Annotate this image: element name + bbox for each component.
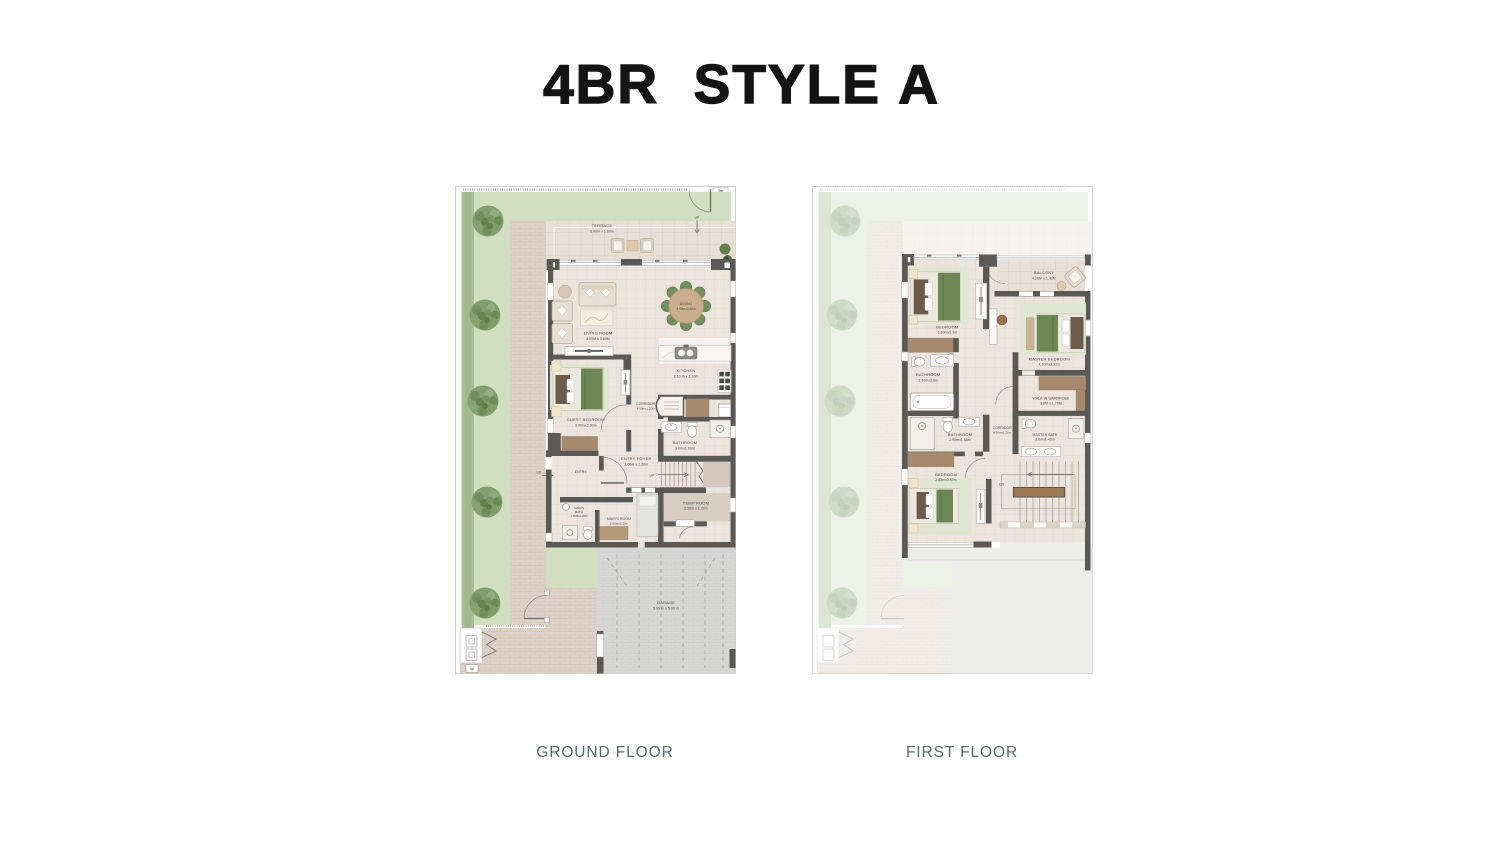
svg-text:2.38m x 1.20m: 2.38m x 1.20m — [684, 507, 708, 511]
svg-text:2.66m x 2.20m: 2.66m x 2.20m — [624, 462, 648, 466]
svg-text:BATHROOM: BATHROOM — [673, 440, 697, 445]
svg-text:W: W — [470, 668, 474, 672]
svg-text:UP: UP — [537, 471, 543, 475]
svg-text:2.65mx2.10m: 2.65mx2.10m — [610, 522, 629, 526]
svg-text:KITCHEN: KITCHEN — [677, 368, 696, 373]
svg-text:3.0M x 1.70M: 3.0M x 1.70M — [1040, 401, 1062, 405]
svg-text:BATHROOM: BATHROOM — [948, 432, 972, 437]
svg-text:3.80mx3.3m: 3.80mx3.3m — [937, 330, 957, 334]
svg-text:ENTRY: ENTRY — [575, 470, 588, 474]
svg-text:2.90mx1.66m: 2.90mx1.66m — [949, 438, 971, 442]
svg-text:LIVING ROOM: LIVING ROOM — [584, 331, 613, 336]
svg-text:3.0mx1.40m: 3.0mx1.40m — [1035, 438, 1055, 442]
svg-text:DINING: DINING — [680, 302, 693, 306]
svg-text:3.90mx3.30m: 3.90mx3.30m — [676, 307, 696, 311]
svg-text:4.05M x 3.80M: 4.05M x 3.80M — [586, 337, 610, 341]
svg-text:ENTRY FOYER: ENTRY FOYER — [621, 456, 652, 461]
svg-text:3.83mx3.60m: 3.83mx3.60m — [935, 478, 957, 482]
svg-text:WALK-IN WARDROBE: WALK-IN WARDROBE — [1032, 396, 1069, 400]
svg-text:MAID'S ROOM: MAID'S ROOM — [607, 517, 631, 521]
svg-text:BEDROOM: BEDROOM — [935, 472, 957, 477]
svg-text:4.00mx1.20m: 4.00mx1.20m — [637, 406, 656, 410]
svg-text:TERRACE: TERRACE — [592, 223, 613, 228]
svg-text:GUEST BEDROOM: GUEST BEDROOM — [567, 417, 605, 422]
svg-text:4.26M x 1.42M: 4.26M x 1.42M — [1032, 276, 1056, 280]
svg-text:UP: UP — [695, 216, 701, 220]
svg-text:1.80Mx1.20M: 1.80Mx1.20M — [571, 514, 589, 518]
svg-text:TEMP ROOM: TEMP ROOM — [683, 501, 709, 506]
svg-text:MASTER BATH: MASTER BATH — [1033, 433, 1058, 437]
svg-text:3.10 m x 3.10m: 3.10 m x 3.10m — [674, 375, 699, 379]
svg-text:3.40mx3.30m: 3.40mx3.30m — [575, 423, 597, 427]
svg-text:2.30mx2.0m: 2.30mx2.0m — [918, 378, 938, 382]
svg-text:3.0mx1.80m: 3.0mx1.80m — [675, 446, 695, 450]
svg-text:4.90mx1.20m: 4.90mx1.20m — [993, 430, 1012, 434]
svg-text:8.00m x 1.60m: 8.00m x 1.60m — [590, 230, 614, 234]
svg-text:5.99 m x 5.00 m: 5.99 m x 5.00 m — [653, 607, 679, 611]
svg-text:BATHROOM: BATHROOM — [916, 372, 940, 377]
svg-text:UP: UP — [650, 473, 656, 477]
svg-text:BALCONY: BALCONY — [1034, 270, 1055, 275]
svg-text:DN: DN — [999, 482, 1005, 486]
svg-text:MASTER BEDROOM: MASTER BEDROOM — [1029, 357, 1070, 362]
svg-text:GARAGE: GARAGE — [657, 600, 675, 605]
svg-text:CORRIDOR: CORRIDOR — [993, 426, 1013, 430]
svg-text:4.20mx3.32m: 4.20mx3.32m — [1038, 363, 1060, 367]
svg-text:BEDROOM: BEDROOM — [936, 325, 958, 330]
